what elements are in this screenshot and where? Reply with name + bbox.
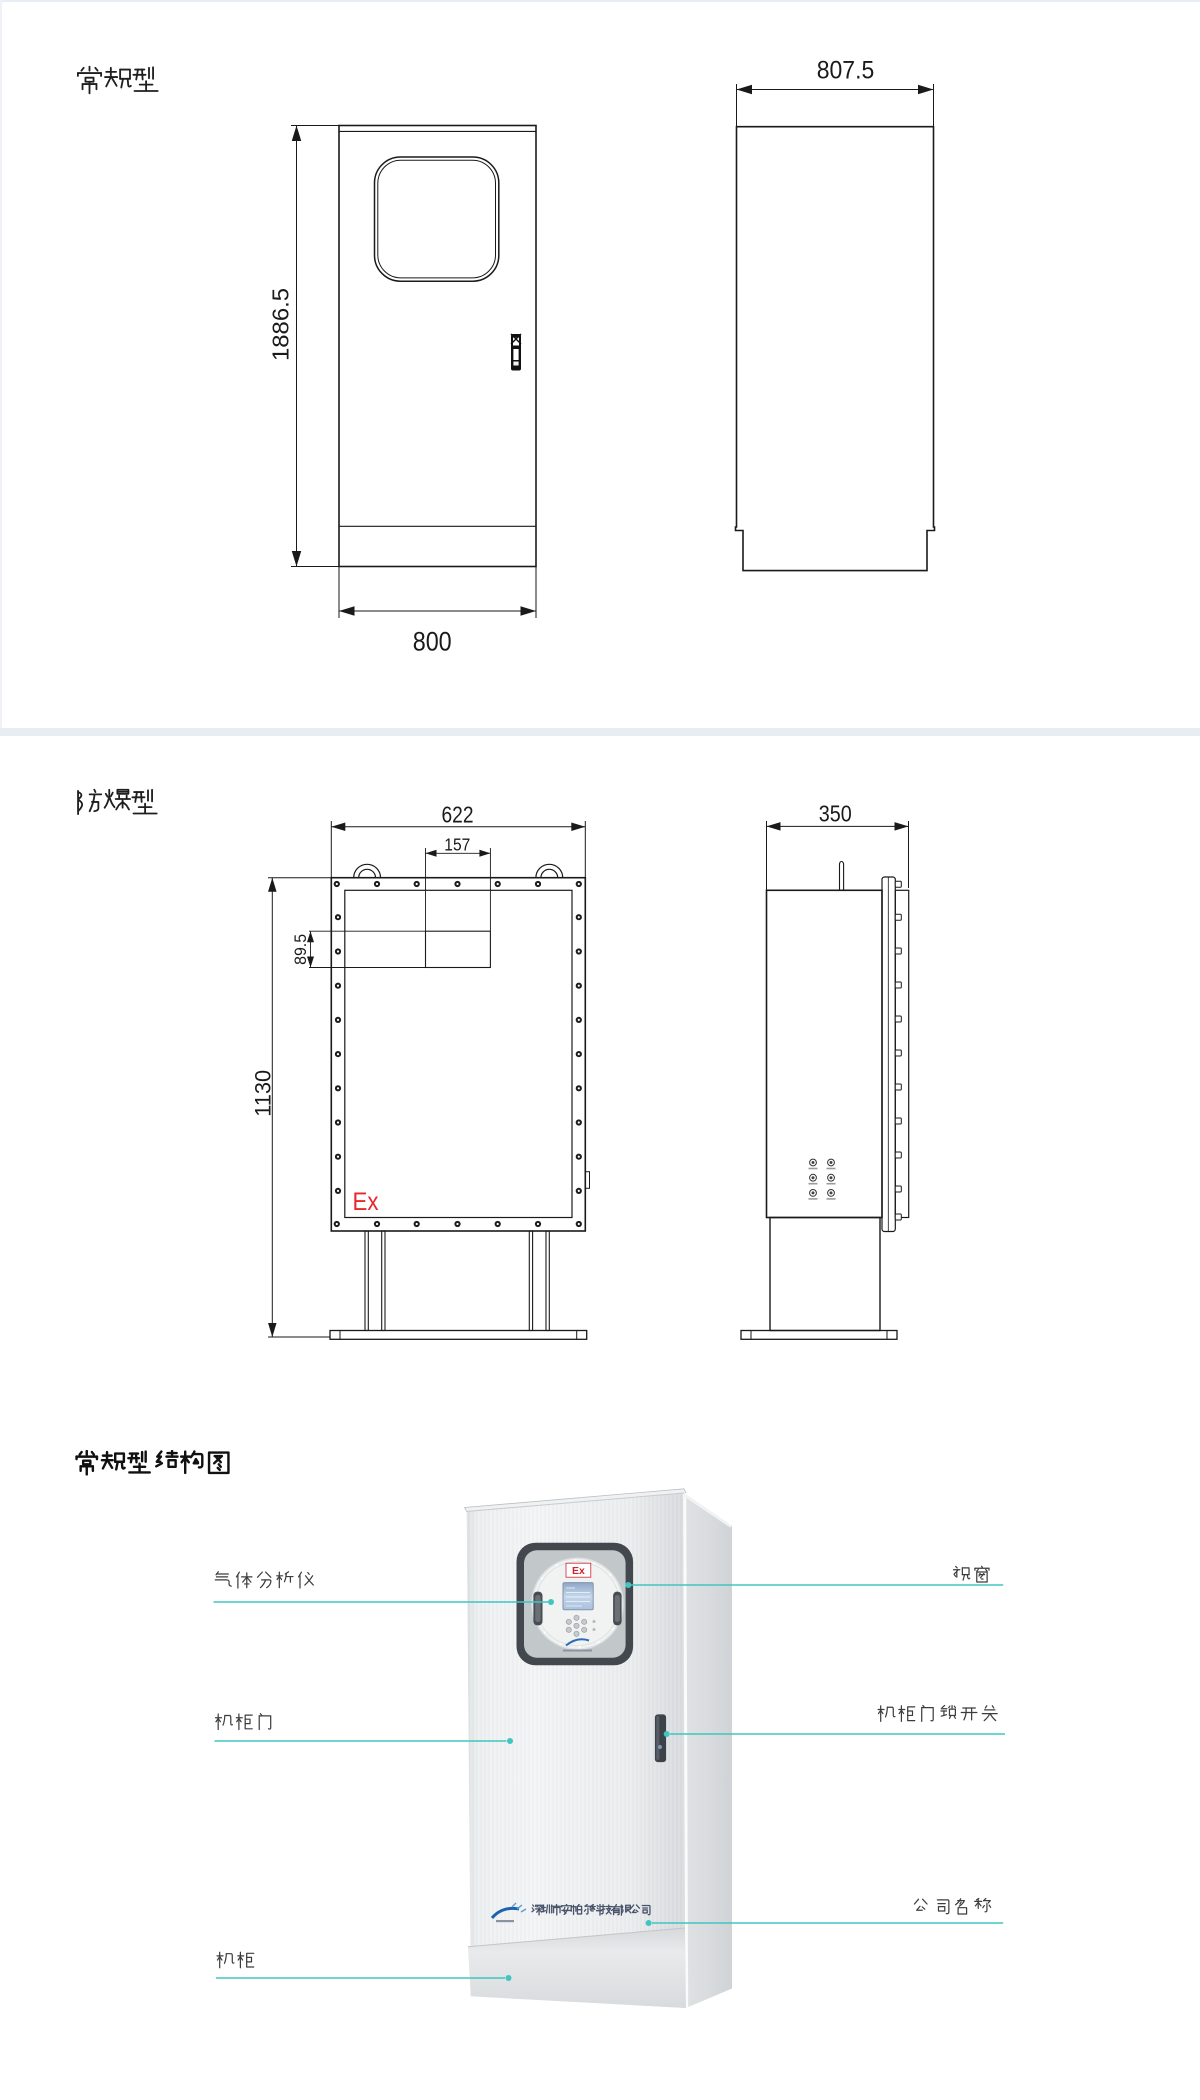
svg-text:807.5: 807.5 bbox=[817, 57, 875, 85]
svg-text:1886.5: 1886.5 bbox=[268, 288, 294, 361]
svg-text:Ex: Ex bbox=[353, 1188, 379, 1216]
svg-text:157: 157 bbox=[444, 835, 470, 855]
svg-text:1130: 1130 bbox=[251, 1070, 276, 1117]
svg-text:350: 350 bbox=[819, 801, 852, 827]
svg-text:800: 800 bbox=[413, 627, 452, 657]
svg-text:89.5: 89.5 bbox=[292, 934, 310, 965]
svg-text:622: 622 bbox=[442, 802, 474, 828]
